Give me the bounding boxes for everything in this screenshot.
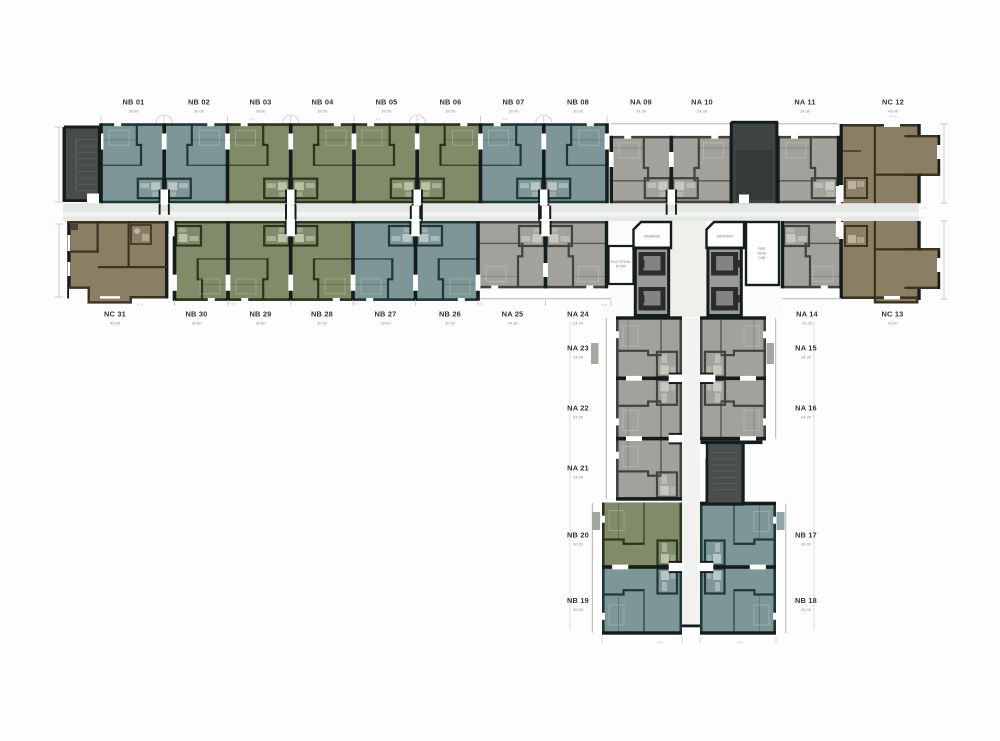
svg-text:30.00: 30.00: [801, 542, 812, 547]
svg-text:NB 29: NB 29: [250, 310, 272, 319]
svg-text:FIRE: FIRE: [758, 247, 765, 251]
svg-text:GARBAGE: GARBAGE: [644, 235, 662, 239]
svg-text:NC 31: NC 31: [104, 310, 126, 319]
svg-text:NB 06: NB 06: [440, 98, 462, 107]
svg-text:NB 18: NB 18: [795, 596, 817, 605]
svg-text:30.00: 30.00: [381, 109, 392, 114]
svg-text:30.00: 30.00: [801, 607, 812, 612]
svg-text:NA 22: NA 22: [567, 404, 589, 413]
svg-text:2.1: 2.1: [250, 117, 255, 121]
svg-text:4.15: 4.15: [477, 302, 483, 306]
svg-text:5.95: 5.95: [657, 641, 663, 645]
svg-text:NC 12: NC 12: [882, 98, 904, 107]
svg-text:NA 24: NA 24: [567, 310, 589, 319]
svg-text:24.30: 24.30: [573, 355, 584, 360]
svg-text:NA 15: NA 15: [795, 344, 817, 353]
svg-text:30.00: 30.00: [508, 109, 519, 114]
svg-text:30.00: 30.00: [317, 109, 328, 114]
svg-text:24.30: 24.30: [507, 321, 518, 326]
svg-text:NB 30: NB 30: [186, 310, 208, 319]
svg-text:24.30: 24.30: [697, 109, 708, 114]
svg-text:24.30: 24.30: [636, 109, 647, 114]
svg-text:30.00: 30.00: [255, 109, 266, 114]
svg-text:NB 19: NB 19: [567, 596, 589, 605]
svg-text:NA 25: NA 25: [502, 310, 524, 319]
svg-text:2.15: 2.15: [921, 206, 927, 210]
svg-text:30.00: 30.00: [445, 109, 456, 114]
svg-text:NB 02: NB 02: [188, 98, 210, 107]
svg-text:30.00: 30.00: [194, 109, 205, 114]
svg-text:30.00: 30.00: [128, 109, 139, 114]
svg-text:30.00: 30.00: [191, 321, 202, 326]
svg-text:HOSE: HOSE: [757, 252, 766, 256]
svg-text:NA 11: NA 11: [794, 98, 815, 107]
svg-text:24.30: 24.30: [801, 415, 812, 420]
svg-text:CAB.: CAB.: [758, 256, 766, 260]
svg-text:NB 05: NB 05: [376, 98, 398, 107]
svg-text:NB 07: NB 07: [503, 98, 525, 107]
svg-text:4.15: 4.15: [229, 302, 235, 306]
svg-text:NB 08: NB 08: [567, 98, 589, 107]
svg-text:30.00: 30.00: [573, 607, 584, 612]
svg-text:30.00: 30.00: [255, 321, 266, 326]
svg-text:2.1: 2.1: [503, 117, 508, 121]
svg-text:NB 20: NB 20: [567, 531, 589, 540]
svg-text:45.65: 45.65: [889, 115, 897, 119]
svg-text:24.30: 24.30: [573, 475, 584, 480]
svg-text:NB 04: NB 04: [312, 98, 335, 107]
svg-text:NB 17: NB 17: [795, 531, 817, 540]
svg-text:24.30: 24.30: [573, 415, 584, 420]
svg-text:4.15: 4.15: [353, 302, 359, 306]
svg-text:24.30: 24.30: [801, 355, 812, 360]
svg-text:5.95: 5.95: [737, 641, 743, 645]
svg-text:NB 27: NB 27: [375, 310, 397, 319]
svg-text:NB 26: NB 26: [439, 310, 461, 319]
svg-text:43.00: 43.00: [888, 109, 899, 114]
svg-text:30.00: 30.00: [445, 321, 456, 326]
svg-text:24.30: 24.30: [802, 321, 813, 326]
svg-text:2.1: 2.1: [376, 117, 381, 121]
svg-text:NA 10: NA 10: [691, 98, 713, 107]
svg-text:NA 09: NA 09: [630, 98, 652, 107]
svg-text:30.00: 30.00: [380, 321, 391, 326]
svg-text:24.30: 24.30: [573, 321, 584, 326]
svg-text:NB 01: NB 01: [123, 98, 145, 107]
svg-text:4.70: 4.70: [601, 303, 607, 307]
svg-text:43.00: 43.00: [887, 321, 898, 326]
svg-text:NB 03: NB 03: [250, 98, 272, 107]
svg-text:ELECTRICAL: ELECTRICAL: [611, 260, 631, 264]
svg-text:NC 13: NC 13: [882, 310, 904, 319]
svg-text:40.50: 40.50: [110, 321, 121, 326]
svg-text:30.00: 30.00: [317, 321, 328, 326]
svg-text:SANITARY: SANITARY: [717, 235, 734, 239]
svg-text:24.30: 24.30: [800, 109, 811, 114]
svg-text:NA 14: NA 14: [796, 310, 818, 319]
svg-text:NA 21: NA 21: [567, 464, 589, 473]
svg-text:NA 16: NA 16: [795, 404, 817, 413]
svg-text:NB 28: NB 28: [311, 310, 333, 319]
svg-text:30.00: 30.00: [573, 542, 584, 547]
svg-text:4.70: 4.70: [137, 303, 143, 307]
svg-text:ROOM: ROOM: [616, 265, 626, 269]
svg-text:30.00: 30.00: [573, 109, 584, 114]
svg-text:NA 23: NA 23: [567, 344, 589, 353]
